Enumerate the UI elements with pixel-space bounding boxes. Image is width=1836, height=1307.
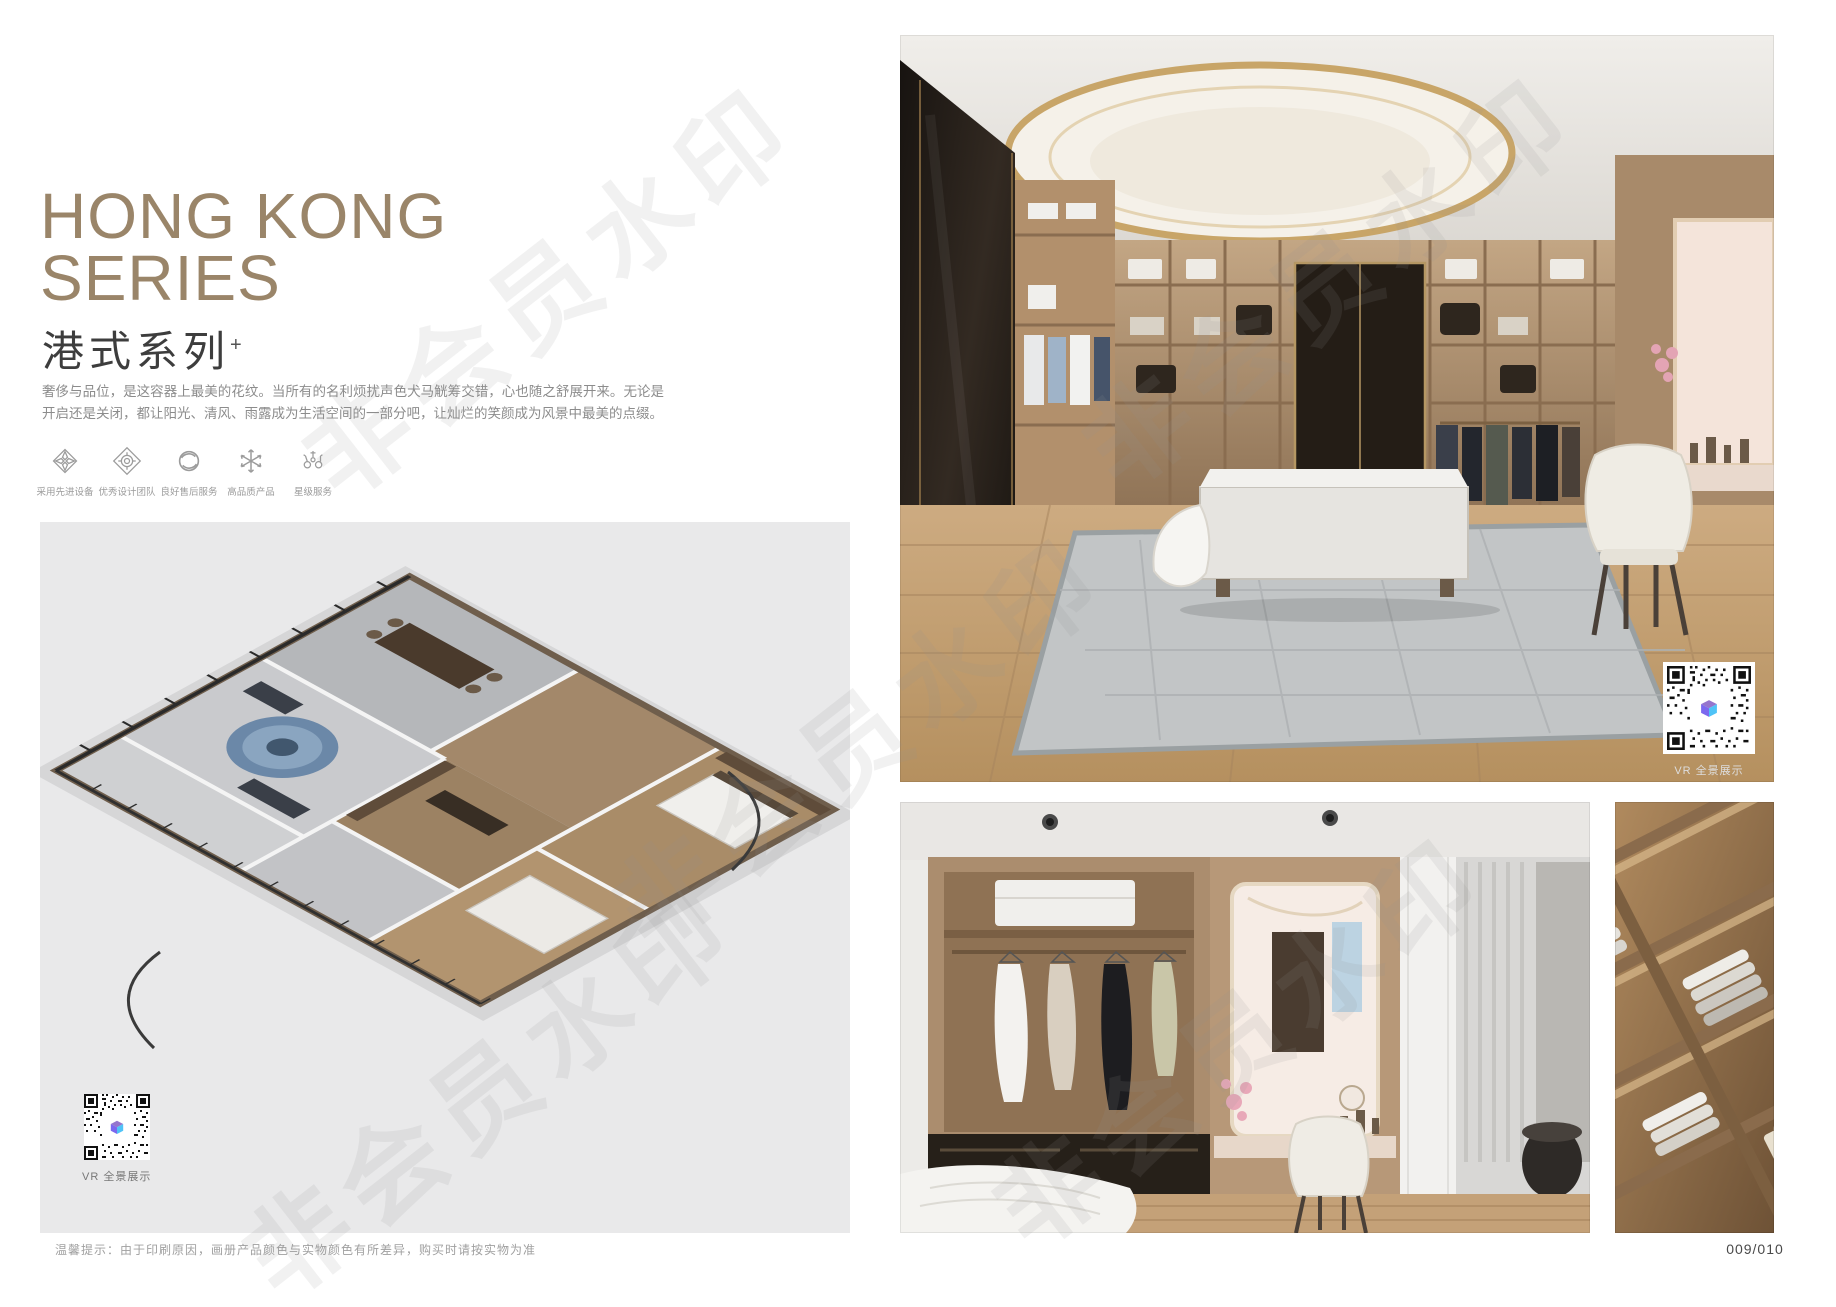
feature-list: 采用先进设备 优秀设计团队 良好售后服务 高品质产品 xyxy=(34,446,344,498)
catalog-page: 非会员水印 非会员水印 非会员水印 非会员水印 非会员水印 HONG KONG … xyxy=(0,0,1836,1307)
series-title: HONG KONG SERIES xyxy=(40,185,447,309)
dressing-photo xyxy=(900,802,1590,1233)
feature-star-service: 星级服务 xyxy=(282,446,344,498)
main-photo-illustration xyxy=(900,35,1774,782)
qr-code xyxy=(1663,662,1755,754)
feature-label: 优秀设计团队 xyxy=(99,483,156,497)
floorplan-balcony-railing xyxy=(128,952,160,1048)
feature-label: 星级服务 xyxy=(294,483,332,497)
feature-label: 高品质产品 xyxy=(227,483,275,497)
print-disclaimer: 温馨提示：由于印刷原因，画册产品颜色与实物颜色有所差异，购买时请按实物为准 xyxy=(55,1241,536,1258)
vr-panorama-label: VR 全景展示 xyxy=(82,1168,151,1184)
dressing-photo-illustration xyxy=(900,802,1590,1233)
quality-product-icon xyxy=(236,446,266,476)
feature-design-team: 优秀设计团队 xyxy=(96,446,158,498)
floorplan-panel: VR 全景展示 xyxy=(40,522,850,1233)
series-subtitle-text: 港式系列 xyxy=(42,328,230,375)
makeup-mirror xyxy=(1340,1086,1364,1110)
feature-advanced-equipment: 采用先进设备 xyxy=(34,446,96,498)
storage-box xyxy=(995,880,1135,926)
after-sales-icon xyxy=(174,446,204,476)
feature-label: 采用先进设备 xyxy=(37,483,94,497)
series-description: 奢侈与品位，是这容器上最美的花纹。当所有的名利烦扰声色犬马觥筹交错，心也随之舒展… xyxy=(42,381,664,425)
design-team-icon xyxy=(112,446,142,476)
feature-after-sales: 良好售后服务 xyxy=(158,446,220,498)
feature-quality-product: 高品质产品 xyxy=(220,446,282,498)
vanity-mirror xyxy=(1675,220,1774,465)
advanced-equipment-icon xyxy=(50,446,80,476)
plus-mark: + xyxy=(230,334,242,356)
qr-code xyxy=(84,1094,150,1160)
floorplan-qr-block: VR 全景展示 xyxy=(82,1094,151,1184)
page-number: 009/010 xyxy=(1712,1241,1798,1257)
main-photo-qr-block: VR 全景展示 xyxy=(1663,662,1755,778)
shelf-photo xyxy=(1615,802,1774,1233)
star-service-icon xyxy=(298,446,328,476)
main-photo: VR 全景展示 xyxy=(900,35,1774,782)
series-title-line1: HONG KONG xyxy=(40,185,447,247)
series-title-line2: SERIES xyxy=(40,247,447,309)
floorplan-illustration xyxy=(40,522,850,1233)
series-subtitle-cn: 港式系列+ xyxy=(42,318,242,379)
feature-label: 良好售后服务 xyxy=(161,483,218,497)
vr-panorama-label: VR 全景展示 xyxy=(1674,762,1743,778)
shelf-photo-illustration xyxy=(1615,802,1774,1233)
